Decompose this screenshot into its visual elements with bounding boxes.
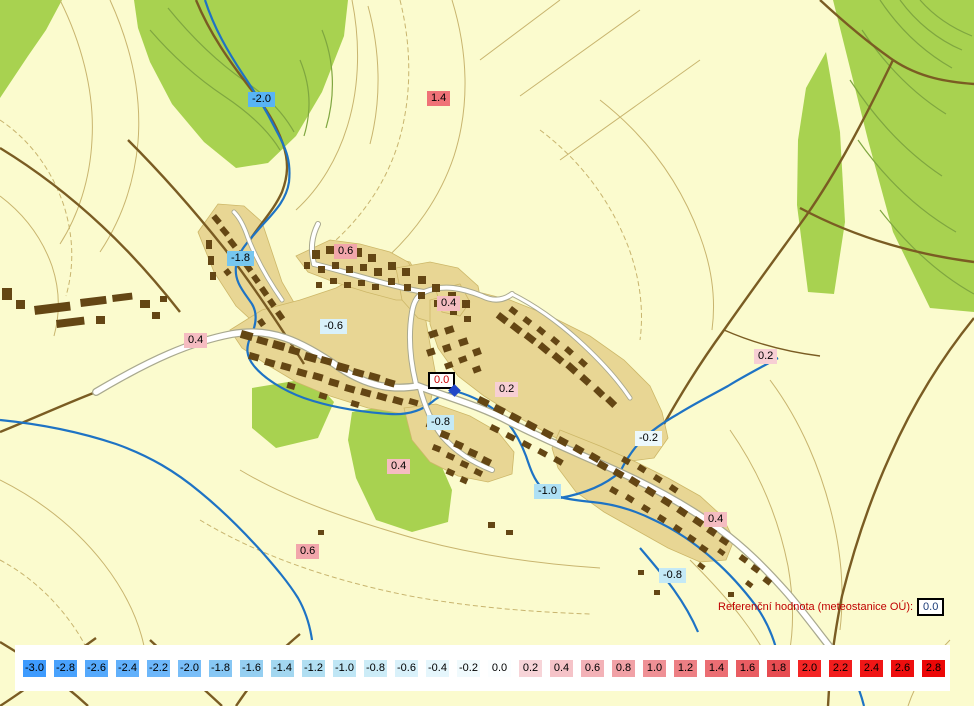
measurement-label: 0.4 (387, 459, 410, 474)
measurement-label: 0.4 (704, 512, 727, 527)
legend-entry: 0.0 (488, 660, 511, 677)
measurement-label: 0.4 (184, 333, 207, 348)
legend-entry: -2.2 (147, 660, 170, 677)
reference-value-box: 0.0 (917, 598, 944, 616)
measurement-label: -0.8 (427, 415, 454, 430)
legend-entry: 2.4 (860, 660, 883, 677)
measurement-label: -1.0 (534, 484, 561, 499)
measurement-label: -2.0 (248, 92, 275, 107)
legend-entry: 1.4 (705, 660, 728, 677)
measurement-label: -0.2 (635, 431, 662, 446)
measurement-label: 1.4 (427, 91, 450, 106)
measurement-label: 0.4 (437, 296, 460, 311)
legend-entry: -2.0 (178, 660, 201, 677)
measurement-label: -1.8 (227, 251, 254, 266)
measurement-label: 0.2 (495, 382, 518, 397)
legend-entry: -2.4 (116, 660, 139, 677)
legend-entry: -1.4 (271, 660, 294, 677)
legend-entry: -2.8 (54, 660, 77, 677)
legend-entry: -1.8 (209, 660, 232, 677)
legend-entry: -0.8 (364, 660, 387, 677)
legend-entry: 2.8 (922, 660, 945, 677)
legend-entry: -1.2 (302, 660, 325, 677)
legend-entry: 0.2 (519, 660, 542, 677)
legend-entry: 2.0 (798, 660, 821, 677)
measurement-label: 0.2 (754, 349, 777, 364)
measurement-label: 0.6 (296, 544, 319, 559)
legend-entry: -3.0 (23, 660, 46, 677)
map-viewport: 0.0 Referenční hodnota (meteostanice OÚ)… (0, 0, 974, 706)
legend-entry: -0.4 (426, 660, 449, 677)
legend-entry: 1.8 (767, 660, 790, 677)
legend-entry: 1.2 (674, 660, 697, 677)
legend-entry: 1.0 (643, 660, 666, 677)
legend-entry: -0.2 (457, 660, 480, 677)
legend-entry: -1.6 (240, 660, 263, 677)
legend-entry: -0.6 (395, 660, 418, 677)
legend-entry: -2.6 (85, 660, 108, 677)
legend-entry: 1.6 (736, 660, 759, 677)
legend-entry: -1.0 (333, 660, 356, 677)
legend-entry: 2.6 (891, 660, 914, 677)
legend-entry: 2.2 (829, 660, 852, 677)
color-scale-legend: -3.0-2.8-2.6-2.4-2.2-2.0-1.8-1.6-1.4-1.2… (15, 645, 950, 691)
measurement-label: -0.6 (320, 319, 347, 334)
legend-entry: 0.8 (612, 660, 635, 677)
legend-entry: 0.6 (581, 660, 604, 677)
legend-entry: 0.4 (550, 660, 573, 677)
measurement-label: 0.6 (334, 244, 357, 259)
measurement-label: -0.8 (659, 568, 686, 583)
reference-line: Referenční hodnota (meteostanice OÚ): 0.… (718, 598, 944, 616)
reference-label: Referenční hodnota (meteostanice OÚ): (718, 601, 913, 613)
